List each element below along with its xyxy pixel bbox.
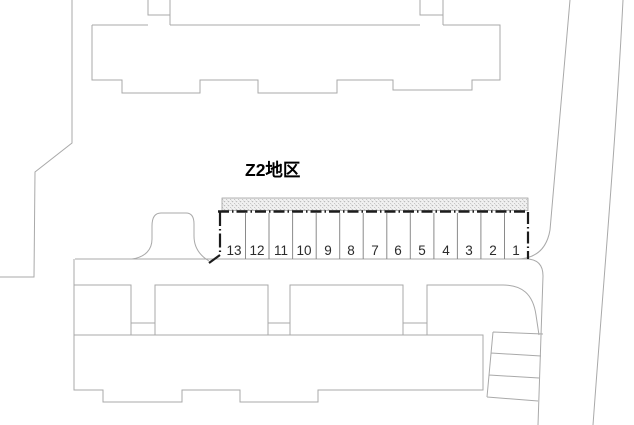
parking-boundary-left — [209, 212, 220, 263]
stall-number: 5 — [418, 243, 426, 258]
stall-number: 7 — [371, 243, 379, 258]
stall-number: 2 — [489, 243, 497, 258]
bottom-building-outline — [74, 259, 483, 402]
bottom-building-wing-a — [74, 285, 131, 335]
hatch-strip — [222, 198, 528, 211]
top-building-outline — [92, 0, 500, 93]
stall-number: 4 — [442, 243, 450, 258]
stall-number: 8 — [347, 243, 355, 258]
small-lot-stall-lines — [487, 332, 543, 401]
stall-number: 3 — [465, 243, 473, 258]
stall-numbers: 13 12 11 10 9 8 7 6 5 4 3 2 1 — [226, 243, 519, 258]
bottom-building-wing-b — [155, 285, 268, 335]
stall-number: 6 — [394, 243, 402, 258]
right-road-edge-outer — [593, 0, 623, 425]
stall-number: 9 — [324, 243, 332, 258]
site-plan-drawing: Z2地区 13 12 11 10 9 8 7 6 5 4 3 2 1 — [0, 0, 634, 425]
stall-number: 12 — [249, 243, 264, 258]
bottom-building-wing-c — [290, 285, 403, 335]
site-plan-page: Z2地区 13 12 11 10 9 8 7 6 5 4 3 2 1 — [0, 0, 634, 425]
right-road-edge-inner — [516, 0, 570, 259]
left-road-boundary — [0, 0, 72, 277]
stall-number: 1 — [512, 243, 520, 258]
district-label: Z2地区 — [245, 160, 300, 180]
stall-number: 11 — [274, 243, 288, 258]
stall-number: 10 — [296, 243, 311, 258]
parking-base-line — [75, 259, 543, 425]
bottom-building-wing-d — [427, 285, 539, 335]
curb-mound-outline — [132, 213, 209, 261]
stall-number: 13 — [226, 243, 241, 258]
